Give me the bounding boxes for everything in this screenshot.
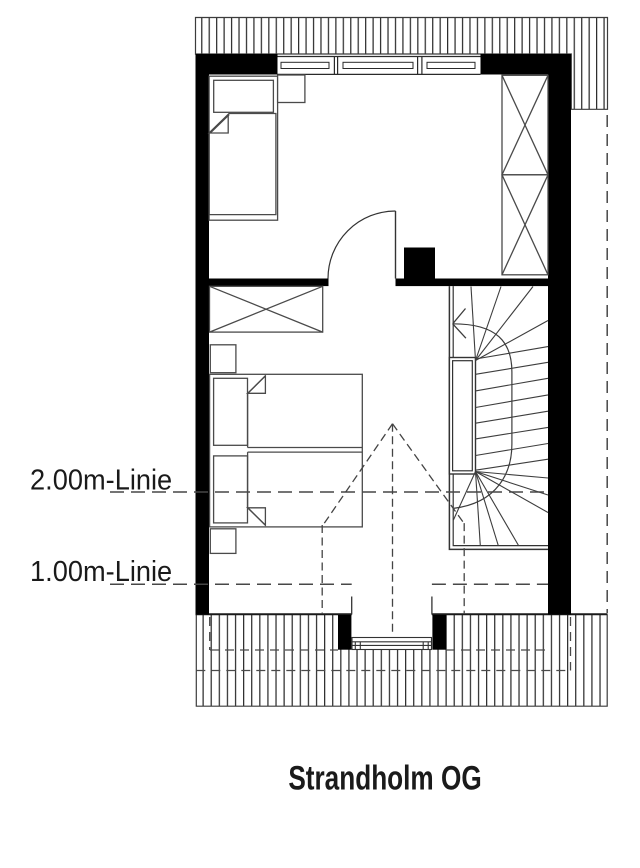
svg-text:Strandholm OG: Strandholm OG <box>288 760 481 797</box>
svg-text:1.00m-Linie: 1.00m-Linie <box>30 555 172 587</box>
svg-text:2.00m-Linie: 2.00m-Linie <box>30 464 172 496</box>
